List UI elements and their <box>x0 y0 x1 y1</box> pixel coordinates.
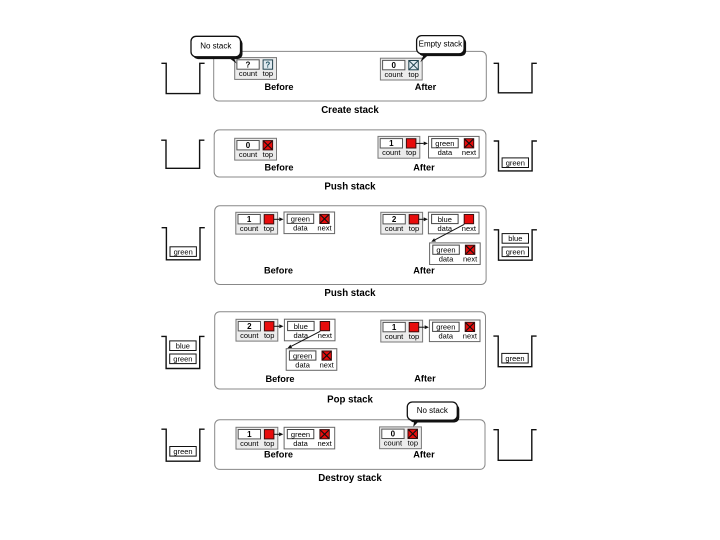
svg-text:top: top <box>263 69 273 78</box>
svg-text:No stack: No stack <box>200 41 232 50</box>
svg-text:count: count <box>385 70 404 79</box>
svg-text:count: count <box>384 439 403 448</box>
svg-text:count: count <box>240 439 259 448</box>
svg-text:1: 1 <box>392 323 397 332</box>
svg-text:next: next <box>318 331 333 340</box>
svg-text:top: top <box>406 148 416 157</box>
svg-text:Destroy stack: Destroy stack <box>318 473 382 484</box>
svg-text:count: count <box>240 331 259 340</box>
svg-text:next: next <box>462 224 477 233</box>
svg-text:top: top <box>408 439 418 448</box>
svg-text:top: top <box>264 331 274 340</box>
svg-text:next: next <box>317 224 332 233</box>
svg-text:next: next <box>462 148 477 157</box>
svg-text:green: green <box>173 447 192 456</box>
svg-text:green: green <box>293 351 312 360</box>
svg-text:count: count <box>239 69 258 78</box>
svg-text:1: 1 <box>389 139 394 148</box>
svg-text:Push stack: Push stack <box>324 288 376 299</box>
svg-text:?: ? <box>265 61 270 70</box>
svg-text:top: top <box>263 150 273 159</box>
svg-text:top: top <box>264 224 274 233</box>
svg-text:Push stack: Push stack <box>324 182 376 193</box>
svg-text:data: data <box>293 224 308 233</box>
svg-text:top: top <box>409 332 419 341</box>
svg-text:green: green <box>436 246 455 255</box>
svg-text:blue: blue <box>294 322 308 331</box>
svg-text:blue: blue <box>438 215 452 224</box>
svg-text:Before: Before <box>264 266 293 276</box>
svg-text:After: After <box>415 82 437 92</box>
svg-text:No stack: No stack <box>417 406 449 415</box>
svg-text:top: top <box>408 70 418 79</box>
svg-text:count: count <box>239 150 258 159</box>
svg-text:green: green <box>435 139 454 148</box>
svg-text:After: After <box>413 450 435 460</box>
svg-text:Before: Before <box>264 82 293 92</box>
svg-text:green: green <box>291 430 310 439</box>
svg-text:0: 0 <box>246 141 251 150</box>
svg-text:0: 0 <box>391 430 396 439</box>
svg-text:blue: blue <box>508 234 522 243</box>
svg-text:Before: Before <box>264 162 293 172</box>
svg-text:data: data <box>293 439 308 448</box>
svg-text:count: count <box>385 332 404 341</box>
svg-text:Empty stack: Empty stack <box>419 40 464 49</box>
svg-text:top: top <box>264 439 274 448</box>
svg-text:data: data <box>438 148 453 157</box>
svg-text:count: count <box>240 224 259 233</box>
svg-text:2: 2 <box>247 322 252 331</box>
svg-text:green: green <box>173 355 192 364</box>
svg-text:next: next <box>463 255 478 264</box>
svg-text:1: 1 <box>247 215 252 224</box>
svg-text:green: green <box>506 158 525 167</box>
svg-text:count: count <box>382 148 401 157</box>
svg-text:green: green <box>174 247 193 256</box>
svg-text:Before: Before <box>264 450 293 460</box>
svg-text:data: data <box>438 332 453 341</box>
svg-text:next: next <box>463 332 478 341</box>
svg-text:next: next <box>318 439 333 448</box>
svg-text:green: green <box>505 354 524 363</box>
svg-text:?: ? <box>246 60 251 69</box>
svg-text:0: 0 <box>391 61 396 70</box>
svg-text:Pop stack: Pop stack <box>327 395 373 406</box>
svg-text:blue: blue <box>176 341 190 350</box>
svg-text:After: After <box>414 374 436 384</box>
svg-text:count: count <box>385 224 404 233</box>
svg-text:data: data <box>295 360 310 369</box>
svg-text:green: green <box>506 248 525 257</box>
svg-text:data: data <box>439 255 454 264</box>
svg-text:After: After <box>413 162 435 172</box>
svg-text:Before: Before <box>265 374 294 384</box>
svg-text:next: next <box>320 360 335 369</box>
svg-text:green: green <box>436 323 455 332</box>
svg-text:green: green <box>291 215 310 224</box>
svg-text:1: 1 <box>247 430 252 439</box>
svg-text:Create stack: Create stack <box>321 105 379 116</box>
svg-text:top: top <box>409 224 419 233</box>
svg-text:2: 2 <box>392 215 397 224</box>
svg-text:After: After <box>413 266 435 276</box>
